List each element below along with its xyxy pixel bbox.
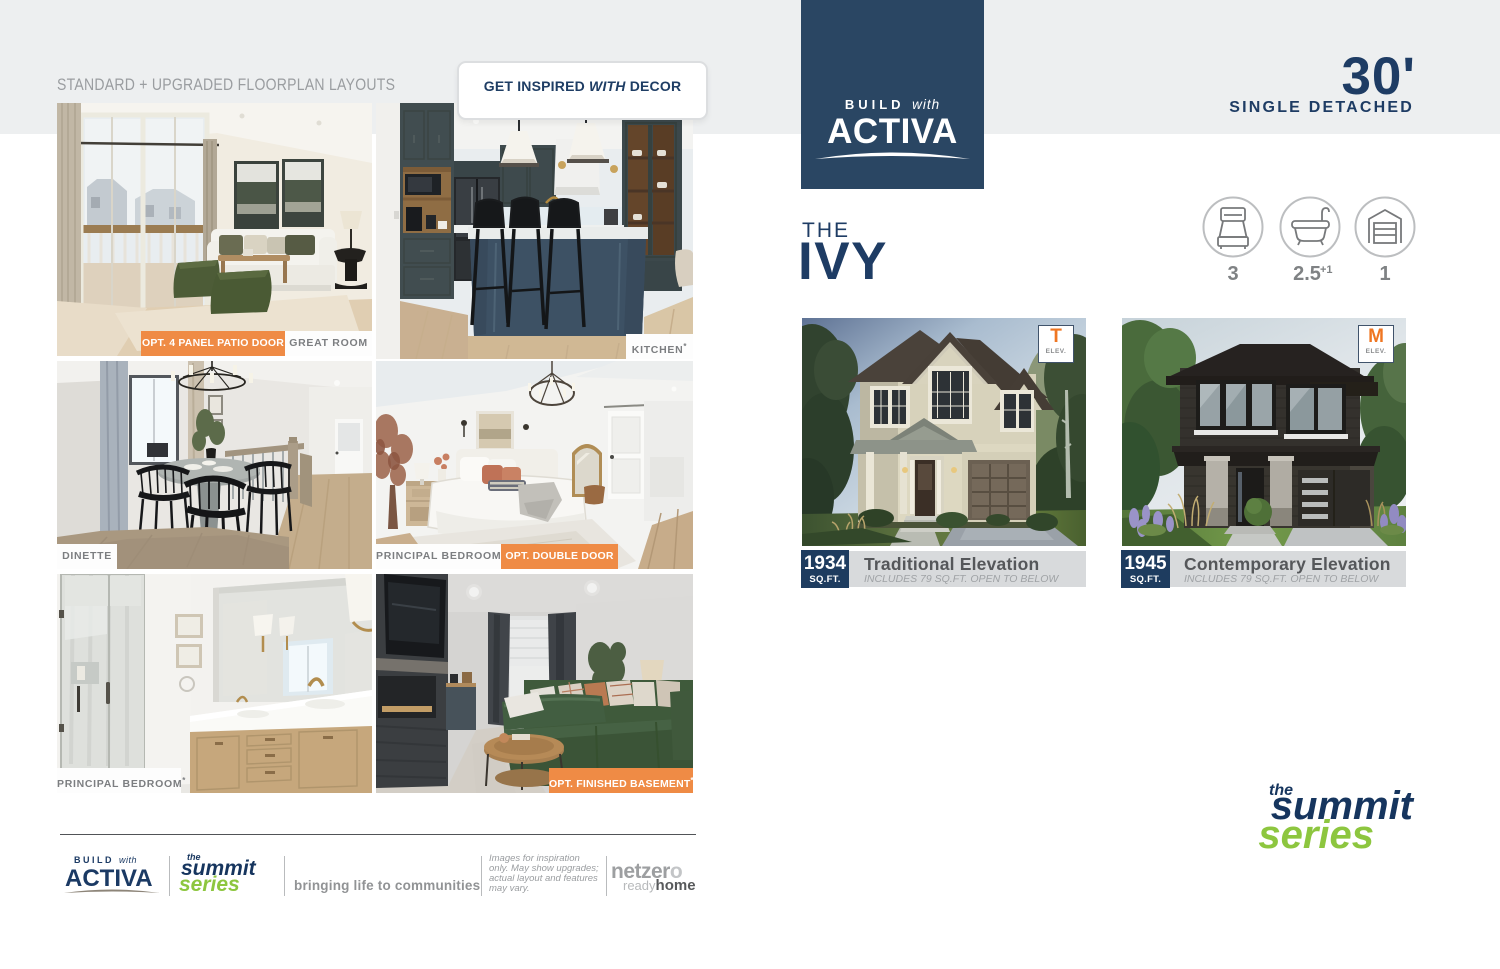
svg-text:1: 1 (1379, 263, 1390, 285)
svg-text:2.5: 2.5 (1293, 263, 1321, 285)
svg-text:3: 3 (1227, 263, 1238, 285)
svg-text:+1: +1 (1320, 264, 1333, 276)
